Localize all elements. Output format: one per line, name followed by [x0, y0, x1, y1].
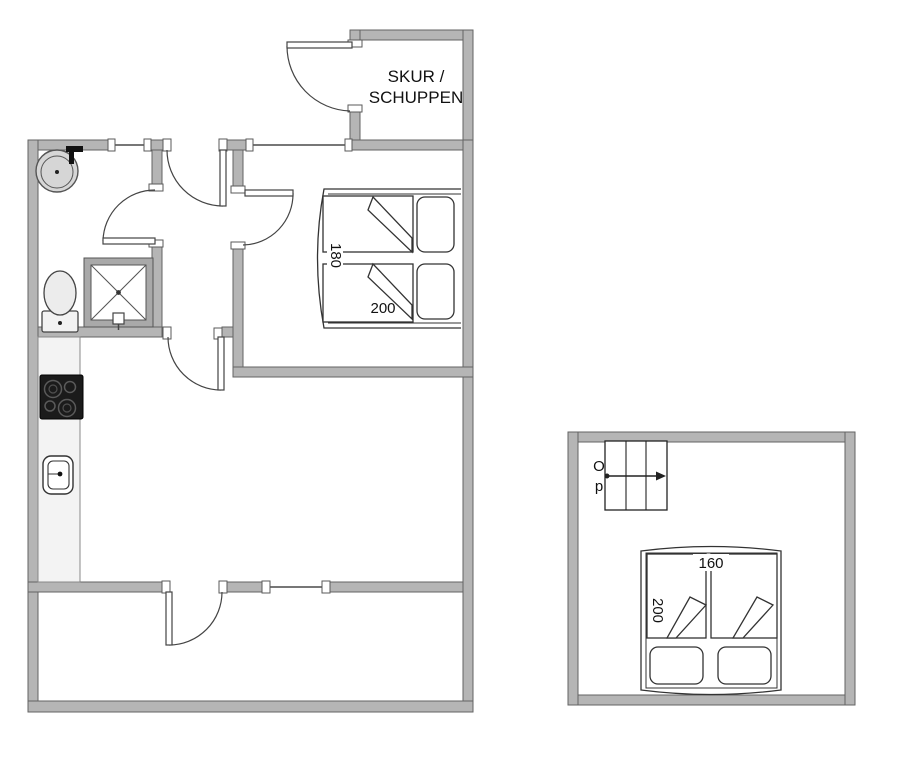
floorplan-image: SKUR / SCHUPPEN — [0, 0, 907, 762]
terrace-wall — [28, 582, 163, 592]
double-bed: 180 200 — [318, 189, 462, 328]
wall-segment — [568, 695, 855, 705]
walls — [28, 30, 473, 712]
cooktop-icon — [40, 375, 83, 419]
washbasin-icon — [36, 146, 83, 192]
pillow — [417, 264, 454, 319]
stairs-label-bottom: p — [595, 478, 603, 495]
wall-segment — [463, 140, 473, 712]
upper-floor-plan: O p 160 200 — [568, 432, 855, 705]
pillow — [650, 647, 703, 684]
shed-wall — [350, 112, 360, 140]
shed-room: SKUR / SCHUPPEN — [369, 67, 463, 107]
ground-floor-plan: SKUR / SCHUPPEN — [28, 30, 473, 712]
bedroom-wall — [233, 367, 473, 377]
floorplan-svg: SKUR / SCHUPPEN — [0, 0, 907, 762]
hall-door — [163, 327, 224, 390]
terrace-wall — [227, 582, 262, 592]
terrace-door — [162, 581, 227, 645]
bedroom-door — [231, 186, 293, 249]
interior-wall — [233, 245, 243, 367]
kitchen-sink-icon — [43, 456, 73, 494]
wall-segment — [28, 701, 473, 712]
shed-wall — [350, 30, 473, 40]
stairs: O p — [593, 441, 667, 510]
wall-segment — [348, 140, 473, 150]
windows — [108, 139, 352, 593]
bed-length-label: 200 — [370, 300, 395, 317]
double-bed: 160 200 — [641, 547, 781, 695]
pillow — [718, 647, 771, 684]
wall-segment — [845, 432, 855, 705]
bed-width-label: 160 — [698, 555, 723, 572]
window — [108, 139, 151, 151]
pillow — [417, 197, 454, 252]
kitchen — [38, 337, 83, 582]
bathroom-door — [103, 184, 163, 247]
stairs-label-top: O — [593, 458, 605, 475]
shed-label-line1: SKUR / — [388, 67, 445, 86]
interior-wall — [222, 327, 233, 337]
shed-label-line2: SCHUPPEN — [369, 88, 463, 107]
entry-door — [163, 139, 227, 206]
bed-length-label: 200 — [649, 598, 666, 623]
window — [262, 581, 330, 593]
shed-wall — [463, 30, 473, 140]
terrace-wall — [330, 582, 463, 592]
window — [246, 139, 352, 151]
shed-door — [287, 40, 362, 112]
wall-segment — [568, 432, 578, 705]
toilet-icon — [42, 271, 78, 332]
wall-segment — [28, 140, 38, 712]
shower-icon — [84, 258, 153, 330]
bed-width-label: 180 — [327, 243, 344, 268]
